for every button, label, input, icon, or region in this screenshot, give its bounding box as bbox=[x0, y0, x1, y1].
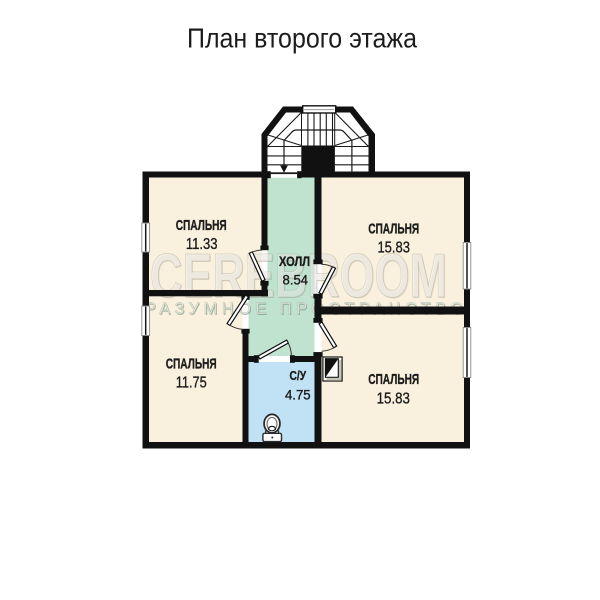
svg-text:С/У: С/У bbox=[290, 368, 307, 383]
svg-text:11.75: 11.75 bbox=[176, 375, 207, 392]
svg-text:4.75: 4.75 bbox=[285, 388, 311, 403]
svg-text:15.83: 15.83 bbox=[377, 240, 410, 257]
svg-text:8.54: 8.54 bbox=[283, 272, 309, 288]
svg-text:15.83: 15.83 bbox=[377, 390, 410, 407]
svg-text:11.33: 11.33 bbox=[186, 236, 218, 253]
svg-text:План второго этажа: План второго этажа bbox=[187, 23, 418, 54]
svg-text:ХОЛЛ: ХОЛЛ bbox=[279, 253, 310, 269]
svg-text:СПАЛЬНЯ: СПАЛЬНЯ bbox=[166, 355, 217, 372]
svg-text:СПАЛЬНЯ: СПАЛЬНЯ bbox=[368, 371, 419, 388]
svg-text:СПАЛЬНЯ: СПАЛЬНЯ bbox=[176, 217, 227, 234]
svg-text:СПАЛЬНЯ: СПАЛЬНЯ bbox=[368, 220, 419, 237]
